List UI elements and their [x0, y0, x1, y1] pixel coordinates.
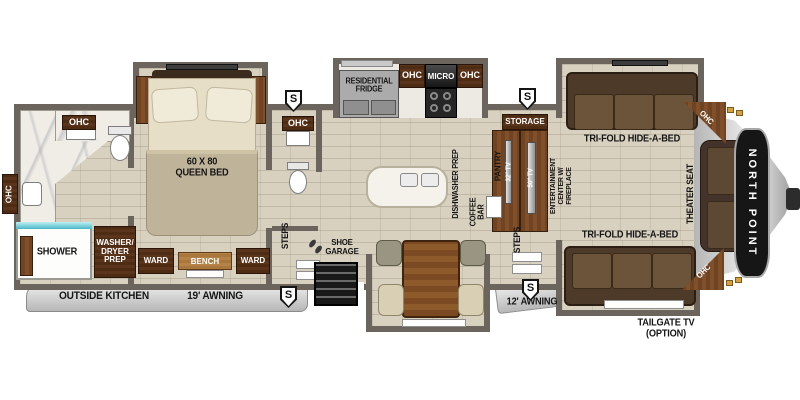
living-step [512, 264, 542, 274]
shoe-garage-label: SHOE GARAGE [325, 238, 358, 256]
ohc-label: OHC [288, 119, 308, 128]
speaker-label: S [280, 289, 297, 301]
bath-toilet-bowl [110, 135, 130, 161]
bath-wall-ohc-cabinet: OHC [2, 174, 18, 214]
wall-bedroom-halfbath-upper [266, 110, 272, 170]
bench-label: BENCH [191, 257, 219, 266]
wardrobe-left: WARD [138, 248, 174, 274]
bath-counter-left [20, 110, 56, 228]
dining-chair [376, 240, 402, 266]
speaker-badge: S [519, 88, 536, 110]
kitchen-ohc-left: OHC [399, 64, 425, 88]
front-cap-panel: NORTH POINT [734, 128, 770, 278]
dining-chair [378, 284, 404, 316]
speaker-badge: S [522, 279, 539, 301]
ohc-label: OHC [460, 71, 480, 80]
living-steps-label: STEPS [513, 227, 523, 253]
micro-label: MICRO [428, 72, 455, 81]
marker-light [727, 107, 734, 113]
entertainment-label: ENTERTAINMENT CENTER W/ FIREPLACE [549, 158, 573, 214]
queen-bed-label: 60 X 80 QUEEN BED [175, 157, 228, 178]
hitch-pin [786, 188, 800, 210]
wall-halfbath-bottom [272, 226, 318, 231]
burner [430, 104, 438, 112]
dining-chair [460, 240, 486, 266]
ward-label: WARD [144, 257, 168, 265]
theater-seat-label: THEATER SEAT [686, 164, 696, 224]
halfbath-ohc-cabinet: OHC [282, 116, 314, 131]
microwave: MICRO [425, 64, 457, 88]
trifold-top-label: TRI-FOLD HIDE-A-BED [584, 135, 680, 146]
tv-32-label: 32" TV [505, 162, 512, 181]
stove [425, 88, 457, 118]
bedroom-steps-label: STEPS [281, 223, 291, 249]
tailgate-tv-label: TAILGATE TV (OPTION) [638, 318, 695, 339]
storage-cabinet: STORAGE [502, 114, 548, 130]
speaker-badge: S [285, 90, 302, 112]
sofa-slide-top-window [612, 60, 668, 66]
marker-light [726, 280, 733, 286]
shower-seat [20, 236, 33, 276]
brand-label: NORTH POINT [746, 149, 758, 258]
bath-toilet-tank [108, 126, 132, 135]
bench: BENCH [178, 252, 232, 270]
island-sink [400, 173, 418, 187]
fridge-drawer [371, 100, 396, 115]
pantry-label: PANTRY [494, 151, 503, 181]
pillow-left [151, 86, 199, 123]
washer-dryer-label: WASHER/ DRYER PREP [96, 239, 133, 264]
burner [443, 104, 451, 112]
pillow-right [205, 86, 253, 123]
coffee-bar-counter [486, 196, 502, 218]
tv-50-label: 50" TV [527, 168, 534, 187]
dining-chair [458, 284, 484, 316]
ward-label: WARD [241, 257, 265, 265]
trifold-sofa-top [566, 72, 698, 130]
bath-ohc-cabinet: OHC [62, 115, 96, 130]
fridge-drawer [343, 100, 369, 115]
speaker-label: S [519, 91, 536, 103]
ohc-label: OHC [402, 71, 422, 80]
wardrobe-right: WARD [236, 248, 270, 274]
burner [443, 92, 451, 100]
washer-dryer-prep: WASHER/ DRYER PREP [94, 226, 136, 278]
bench-step [186, 270, 224, 278]
ohc-label: OHC [6, 185, 14, 203]
storage-label: STORAGE [505, 118, 544, 126]
halfbath-sink [286, 131, 310, 146]
kitchen-slide-window [341, 60, 393, 67]
ohc-label: OHC [69, 118, 89, 127]
dining-table [402, 240, 460, 318]
island-sink [421, 173, 439, 187]
speaker-label: S [522, 282, 539, 294]
sofa-slide-bottom-window [604, 300, 684, 309]
shower-glass [16, 222, 92, 229]
bath-corner-sink [22, 182, 42, 206]
trifold-sofa-bottom [564, 246, 696, 306]
shower-label: SHOWER [37, 248, 77, 259]
outside-kitchen-label: OUTSIDE KITCHEN [59, 291, 149, 303]
residential-fridge-label: RESIDENTIAL FRIDGE [345, 78, 392, 95]
dining-slide-window [402, 319, 466, 327]
entry-steps [314, 262, 358, 306]
coffee-bar-label: COFFEE BAR [470, 198, 487, 227]
awning-19-label: 19' AWNING [187, 291, 243, 303]
living-step [512, 252, 542, 262]
kitchen-ohc-right: OHC [457, 64, 483, 88]
trifold-bottom-label: TRI-FOLD HIDE-A-BED [582, 231, 678, 242]
marker-light [736, 110, 743, 116]
marker-light [735, 277, 742, 283]
speaker-badge: S [280, 286, 297, 308]
burner [430, 92, 438, 100]
wall-halfbath-kitchen [316, 110, 322, 172]
rv-floorplan: OUTSIDE KITCHEN 19' AWNING 12' AWNING NO… [0, 0, 800, 400]
halfbath-toilet-bowl [289, 170, 307, 194]
halfbath-toilet-tank [287, 162, 309, 170]
dishwasher-prep-label: DISHWASHER PREP [452, 149, 460, 218]
speaker-label: S [285, 93, 302, 105]
